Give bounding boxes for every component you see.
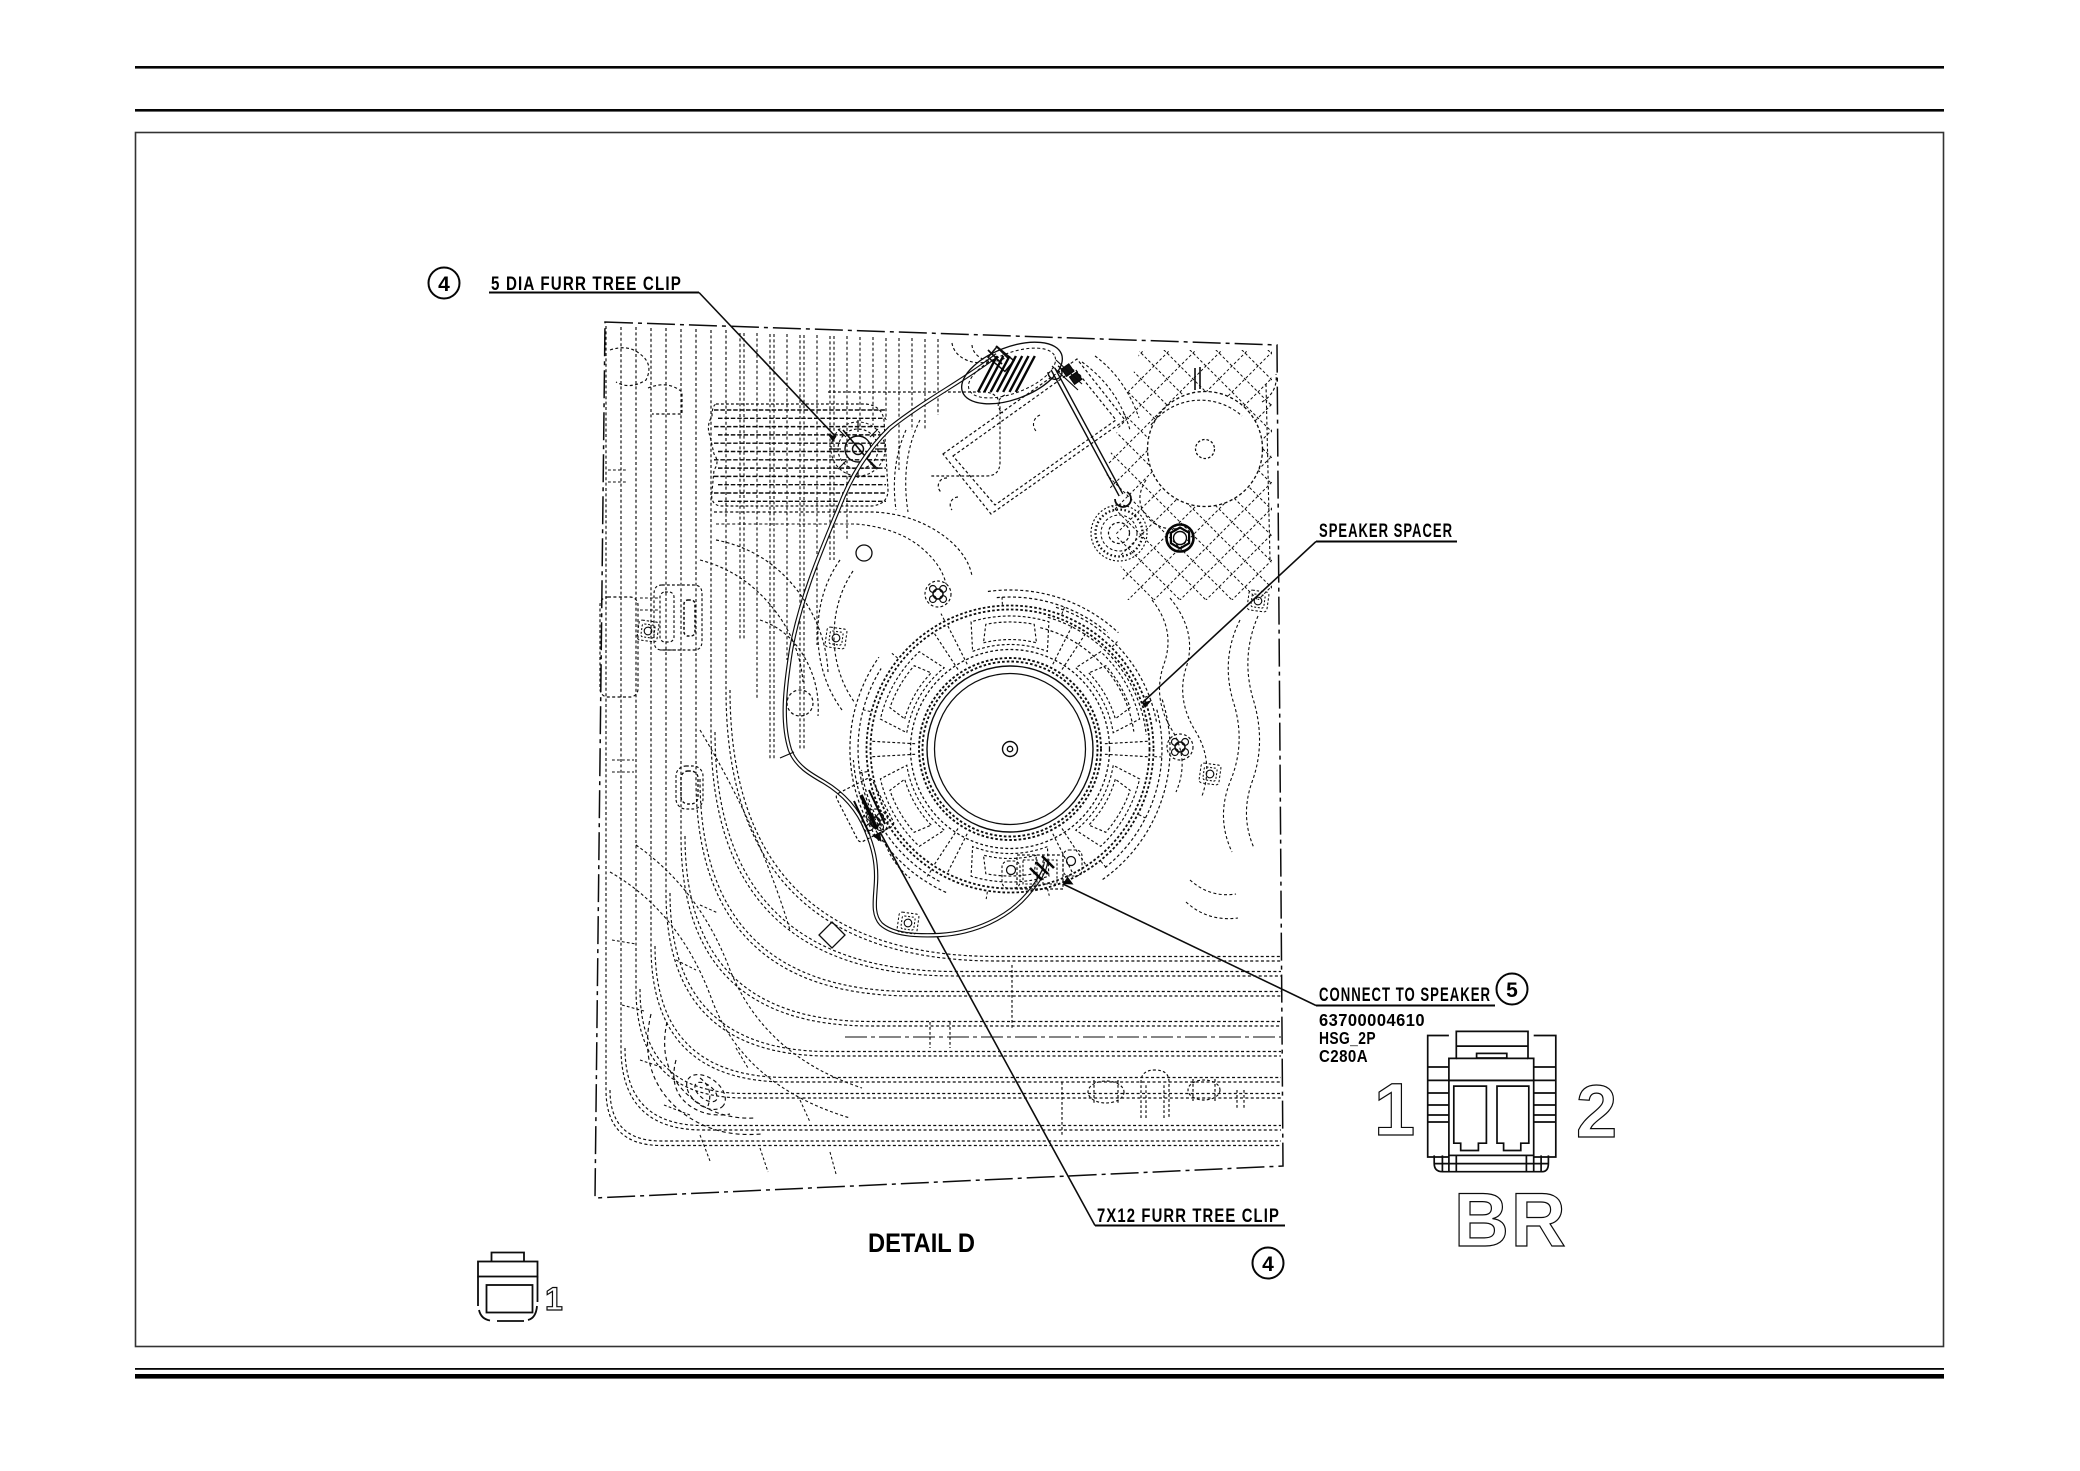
svg-text:7X12 FURR TREE CLIP: 7X12 FURR TREE CLIP bbox=[1097, 1205, 1280, 1227]
svg-text:1: 1 bbox=[1374, 1068, 1415, 1151]
svg-text:SPEAKER SPACER: SPEAKER SPACER bbox=[1319, 520, 1453, 542]
svg-text:CONNECT TO SPEAKER: CONNECT TO SPEAKER bbox=[1319, 984, 1491, 1006]
svg-text:HSG_2P: HSG_2P bbox=[1319, 1028, 1376, 1048]
svg-text:2: 2 bbox=[1576, 1070, 1617, 1153]
svg-text:5: 5 bbox=[1506, 979, 1518, 1002]
svg-text:4: 4 bbox=[438, 273, 450, 296]
svg-text:DETAIL D: DETAIL D bbox=[868, 1228, 975, 1258]
svg-text:1: 1 bbox=[545, 1281, 563, 1317]
svg-text:4: 4 bbox=[1262, 1253, 1274, 1276]
svg-text:BR: BR bbox=[1454, 1178, 1568, 1263]
svg-text:C280A: C280A bbox=[1319, 1046, 1368, 1066]
svg-text:63700004610: 63700004610 bbox=[1319, 1010, 1425, 1030]
